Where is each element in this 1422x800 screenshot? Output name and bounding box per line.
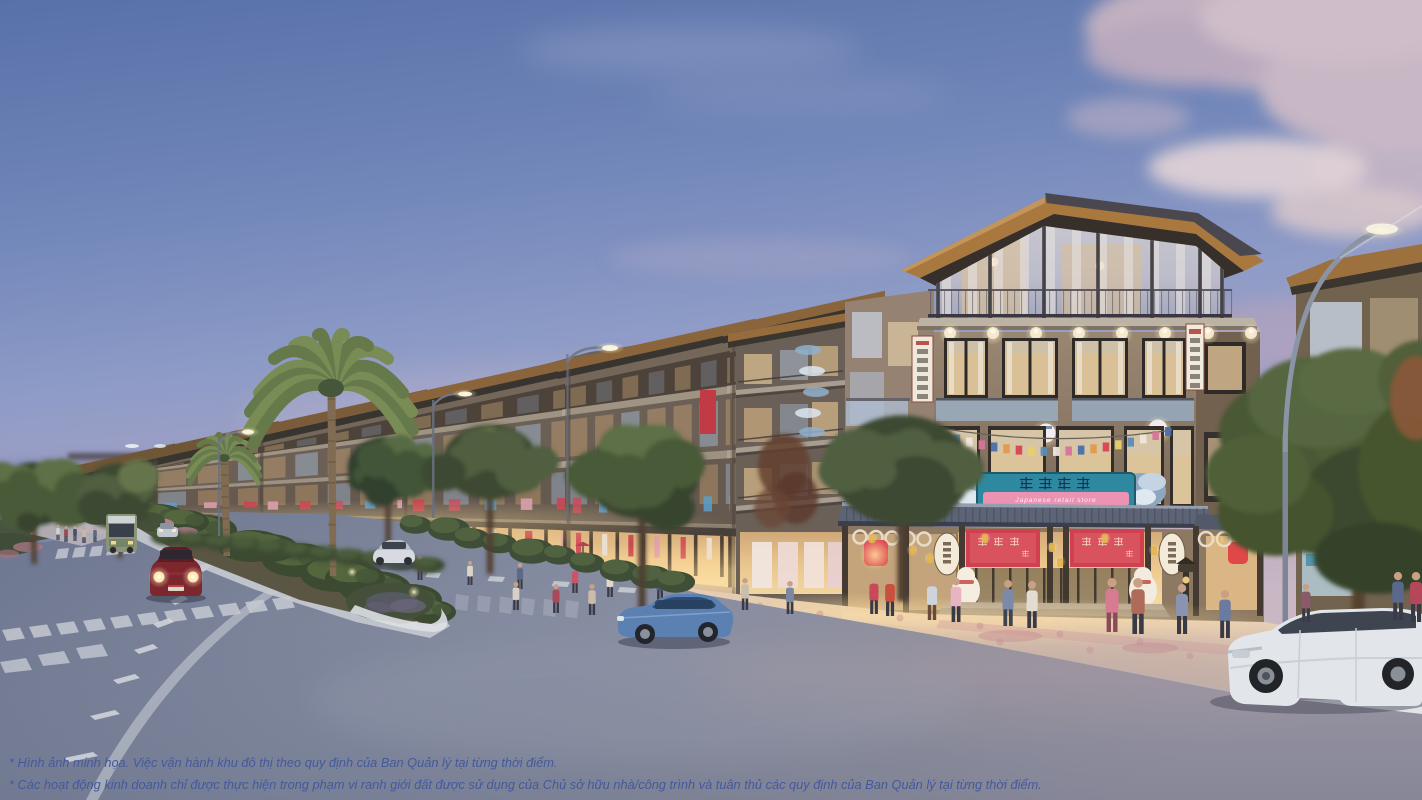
svg-text:* Các hoạt động kinh doanh chỉ: * Các hoạt động kinh doanh chỉ được thực… [9,777,1042,792]
svg-text:* Hình ảnh minh họa. Việc vận: * Hình ảnh minh họa. Việc vận hành khu đ… [9,755,557,770]
svg-text:Japanese retail store: Japanese retail store [1014,497,1096,504]
